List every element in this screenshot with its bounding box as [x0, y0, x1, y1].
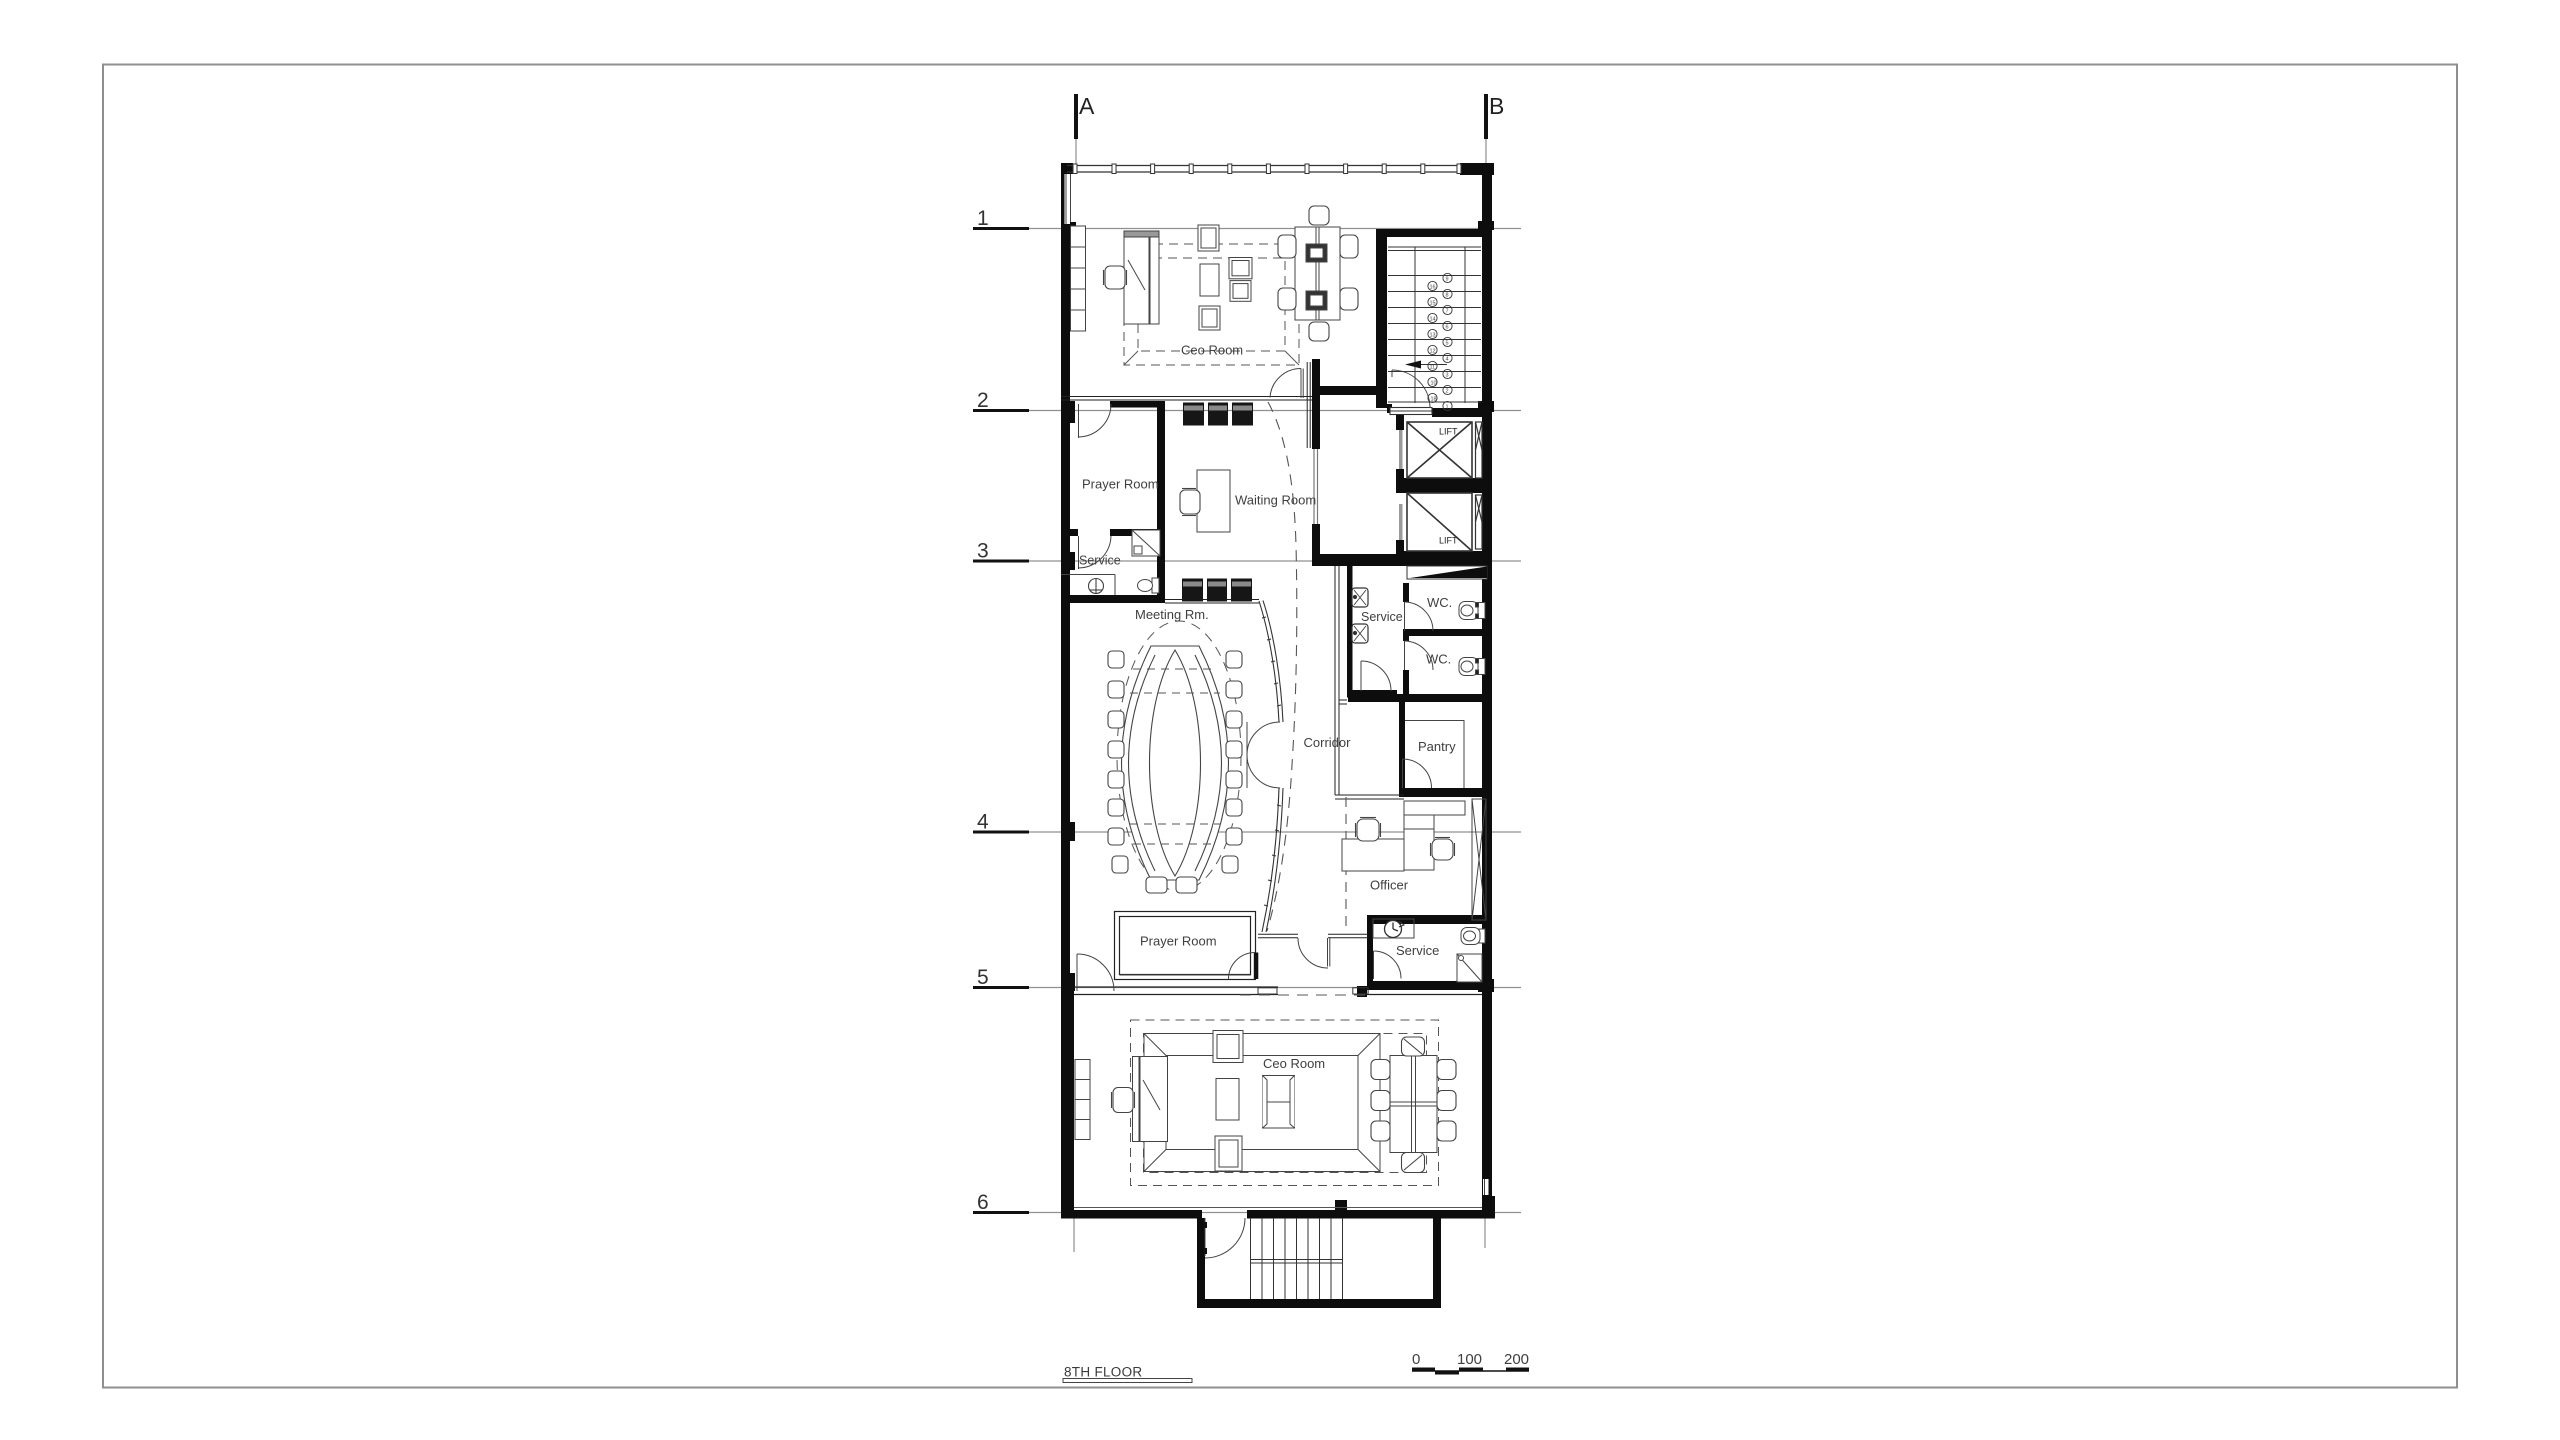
- svg-text:10: 10: [1431, 380, 1437, 386]
- svg-text:4: 4: [1446, 356, 1449, 362]
- svg-text:A: A: [1079, 93, 1095, 119]
- svg-text:8: 8: [1446, 292, 1449, 298]
- svg-text:12: 12: [1430, 348, 1436, 354]
- svg-text:15: 15: [1430, 300, 1436, 306]
- svg-text:B: B: [1489, 93, 1504, 119]
- svg-text:Meeting Rm.: Meeting Rm.: [1135, 607, 1209, 622]
- svg-text:Prayer Room: Prayer Room: [1140, 934, 1217, 949]
- svg-text:200: 200: [1504, 1351, 1529, 1368]
- svg-text:2: 2: [1446, 388, 1449, 394]
- svg-text:5: 5: [977, 966, 989, 989]
- svg-text:Prayer Room: Prayer Room: [1082, 477, 1159, 492]
- svg-text:6: 6: [1446, 324, 1449, 330]
- svg-text:Service: Service: [1079, 554, 1121, 568]
- svg-text:Pantry: Pantry: [1418, 739, 1456, 754]
- svg-text:7: 7: [1446, 308, 1449, 314]
- svg-text:Corridor: Corridor: [1304, 735, 1352, 750]
- svg-text:LIFT: LIFT: [1439, 536, 1458, 546]
- svg-text:Ceo Room: Ceo Room: [1181, 343, 1243, 358]
- svg-text:3: 3: [1446, 372, 1449, 378]
- svg-text:14: 14: [1430, 316, 1436, 322]
- svg-text:9: 9: [1446, 276, 1449, 282]
- svg-text:11: 11: [1430, 364, 1436, 370]
- svg-text:18: 18: [1431, 396, 1437, 402]
- svg-text:WC.: WC.: [1427, 595, 1452, 610]
- svg-text:1: 1: [1446, 404, 1449, 410]
- svg-text:Ceo Room: Ceo Room: [1263, 1056, 1325, 1071]
- svg-text:4: 4: [977, 811, 989, 834]
- svg-text:Service: Service: [1396, 943, 1439, 958]
- svg-text:0: 0: [1412, 1351, 1420, 1368]
- svg-text:1: 1: [977, 207, 989, 230]
- svg-text:5: 5: [1446, 340, 1449, 346]
- svg-text:LIFT: LIFT: [1439, 427, 1458, 437]
- svg-text:2: 2: [977, 389, 989, 412]
- svg-text:Officer: Officer: [1370, 878, 1409, 893]
- svg-text:Service: Service: [1361, 610, 1403, 624]
- svg-text:100: 100: [1457, 1351, 1482, 1368]
- svg-text:3: 3: [977, 540, 989, 563]
- svg-text:16: 16: [1430, 284, 1436, 290]
- svg-text:13: 13: [1430, 332, 1436, 338]
- svg-text:6: 6: [977, 1191, 989, 1214]
- svg-text:8TH FLOOR: 8TH FLOOR: [1064, 1365, 1142, 1380]
- svg-text:WC.: WC.: [1426, 652, 1451, 667]
- svg-text:Waiting Room: Waiting Room: [1235, 493, 1316, 508]
